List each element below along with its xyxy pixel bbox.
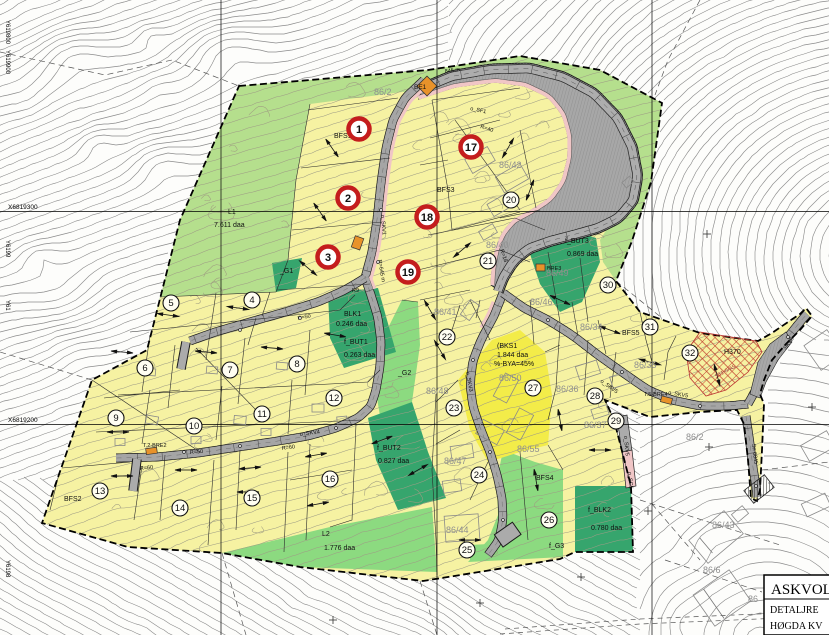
svg-text:11: 11 [257,409,267,420]
svg-text:9: 9 [113,413,118,424]
svg-text:BFS2: BFS2 [64,496,82,503]
svg-text:86/34: 86/34 [580,322,603,332]
svg-text:86/2: 86/2 [686,432,704,442]
svg-text:HØGDA KV: HØGDA KV [770,621,823,632]
svg-text:20: 20 [506,195,517,206]
svg-text:86/47: 86/47 [444,456,467,466]
svg-text:0.827 daa: 0.827 daa [378,458,409,465]
svg-text:BFS3: BFS3 [437,187,455,194]
svg-text:23: 23 [449,403,460,414]
svg-text:H370: H370 [724,349,741,356]
svg-text:2: 2 [345,193,351,205]
svg-text:86: 86 [748,594,758,604]
svg-text:f_BUT2: f_BUT2 [377,445,401,452]
svg-text:86/50: 86/50 [499,373,522,383]
svg-text:DETALJRE: DETALJRE [770,605,819,616]
svg-text:12: 12 [329,393,340,404]
svg-text:Y619800: Y619800 [4,20,10,45]
svg-text:21: 21 [483,256,494,267]
svg-text:86/37: 86/37 [584,420,607,430]
svg-text:6: 6 [142,363,147,374]
svg-text:1.844 daa: 1.844 daa [497,352,528,359]
svg-text:86/2: 86/2 [374,87,392,97]
svg-text:X6819200: X6819200 [8,417,38,424]
svg-text:R=50: R=50 [190,449,204,456]
svg-text:4: 4 [249,295,254,306]
svg-text:BLK1: BLK1 [344,311,361,318]
svg-text:f_BLK2: f_BLK2 [588,507,611,514]
svg-text:86/6: 86/6 [703,565,721,575]
svg-text:5: 5 [168,298,173,309]
svg-text:18: 18 [421,212,433,224]
svg-text:86/35: 86/35 [634,360,657,370]
svg-text:f_G3: f_G3 [549,543,564,550]
svg-text:X6819300: X6819300 [8,204,38,211]
svg-text:86/36: 86/36 [556,384,579,394]
svg-text:7.611 daa: 7.611 daa [214,222,245,229]
svg-text:14: 14 [175,503,186,514]
svg-text:1.776 daa: 1.776 daa [324,545,355,552]
svg-text:BE1: BE1 [414,84,427,91]
svg-text:Y619900: Y619900 [4,50,10,75]
svg-text:R=60: R=60 [140,465,154,472]
svg-text:26: 26 [544,515,555,526]
svg-text:29: 29 [611,416,622,427]
svg-text:31: 31 [645,322,656,333]
svg-text:86/49: 86/49 [546,268,569,278]
svg-text:0.869 daa: 0.869 daa [567,251,598,258]
svg-text:1: 1 [356,124,362,136]
svg-text:7: 7 [227,365,232,376]
svg-text:Y61: Y61 [4,300,10,311]
svg-text:0.780 daa: 0.780 daa [591,525,622,532]
svg-text:17: 17 [465,142,477,154]
svg-text:22: 22 [442,332,453,343]
svg-text:86/41: 86/41 [434,307,457,317]
svg-text:f_BUT1: f_BUT1 [344,339,368,346]
svg-text:86/55: 86/55 [517,444,540,454]
svg-text:86/46: 86/46 [530,297,553,307]
svg-text:R9: R9 [352,288,359,294]
svg-text:27: 27 [528,383,539,394]
svg-text:_G2: _G2 [397,370,411,377]
svg-text:f_BUT3: f_BUT3 [565,238,589,245]
svg-text:T.2-BRE2: T.2-BRE2 [143,443,167,449]
svg-text:86/44: 86/44 [446,525,469,535]
svg-text:0.246 daa: 0.246 daa [336,321,367,328]
svg-text:16: 16 [325,474,336,485]
svg-text:86/40: 86/40 [486,240,509,250]
svg-text:86/48: 86/48 [426,386,449,396]
svg-text:86/43: 86/43 [712,520,735,530]
svg-text:86/42: 86/42 [499,160,522,170]
svg-text:L1: L1 [228,209,236,216]
svg-text:32: 32 [685,348,696,359]
svg-text:19: 19 [402,267,414,279]
svg-text:13: 13 [95,486,106,497]
svg-text:T.5-BRE4: T.5-BRE4 [644,392,668,398]
svg-text:15: 15 [247,493,258,504]
svg-text:3: 3 [325,252,331,264]
svg-text:30: 30 [603,280,614,291]
svg-text:_G1: _G1 [279,268,293,275]
svg-text:ASKVOL: ASKVOL [771,582,829,598]
svg-text:(BKS1: (BKS1 [497,343,517,350]
svg-text:8: 8 [294,359,299,370]
svg-text:Y6198: Y6198 [4,560,10,578]
svg-text:%-BYA=45%: %-BYA=45% [494,361,534,368]
svg-text:0.263 daa: 0.263 daa [344,352,375,359]
svg-text:24: 24 [474,470,485,481]
svg-text:25: 25 [462,545,473,556]
svg-text:Y6199: Y6199 [4,240,10,258]
svg-text:BFS4: BFS4 [536,475,554,482]
svg-text:BFS5: BFS5 [622,330,640,337]
svg-text:10: 10 [189,421,200,432]
svg-text:28: 28 [590,391,601,402]
svg-text:L2: L2 [322,531,330,538]
